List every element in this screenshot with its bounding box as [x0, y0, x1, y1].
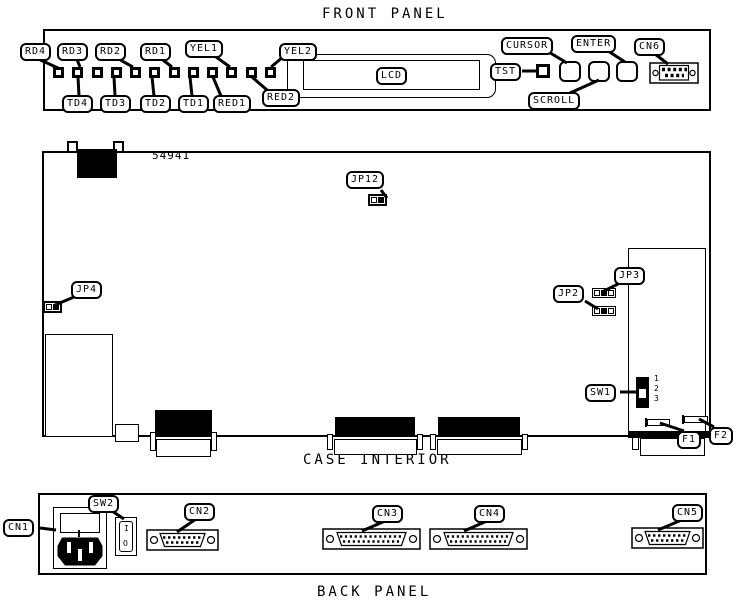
sw1-pos-3: 3	[654, 394, 659, 404]
connector3-shell	[437, 439, 522, 455]
transformer	[77, 149, 117, 178]
connector3-ear-left	[430, 434, 436, 450]
jp2-jumper	[592, 306, 616, 316]
cursor-button	[559, 61, 581, 82]
label-cn2: CN2	[184, 503, 215, 521]
sw1-pos-1: 1	[654, 374, 659, 384]
cn1-power-inlet	[57, 537, 103, 566]
connector3-ear-right	[522, 434, 528, 450]
label-td3: TD3	[100, 95, 131, 113]
connector1-shell	[156, 439, 211, 457]
front-panel-title: FRONT PANEL	[322, 6, 448, 22]
label-td4: TD4	[62, 95, 93, 113]
label-sw2: SW2	[88, 495, 119, 513]
label-scroll: SCROLL	[528, 92, 580, 110]
led-yel1	[226, 67, 237, 78]
label-td2: TD2	[140, 95, 171, 113]
sw2-off-mark: O	[123, 540, 128, 548]
led-td1	[188, 67, 199, 78]
led-rd2	[130, 67, 141, 78]
label-cn5: CN5	[672, 504, 703, 522]
led-rd3	[92, 67, 103, 78]
power-supply-block	[45, 334, 113, 437]
cn2-connector	[146, 529, 219, 551]
label-red1: RED1	[213, 95, 251, 113]
jp4-jumper	[43, 301, 62, 313]
connector3-body	[438, 417, 520, 436]
connector1-ear-right	[211, 432, 217, 451]
label-lcd: LCD	[376, 67, 407, 85]
sw2-rocker: I O	[119, 521, 133, 552]
f1-fuse	[647, 419, 670, 426]
sw1-positions: 1 2 3	[654, 374, 659, 404]
label-yel2: YEL2	[279, 43, 317, 61]
sw1-switch	[636, 377, 649, 408]
led-td2	[149, 67, 160, 78]
led-red2	[246, 67, 257, 78]
label-jp3: JP3	[614, 267, 645, 285]
connector2-shell	[334, 439, 417, 455]
label-jp4: JP4	[71, 281, 102, 299]
enter-button	[616, 61, 638, 82]
hardware-diagram: FRONT PANEL CASE INTERIOR BACK PANEL RD4…	[0, 0, 736, 609]
sw2-on-mark: I	[124, 525, 129, 533]
label-yel1: YEL1	[185, 40, 223, 58]
fuse-drawer	[60, 513, 100, 533]
board-connector-ear	[632, 437, 639, 450]
label-rd3: RD3	[57, 43, 88, 61]
sw1-actuator	[639, 389, 646, 398]
fuse-drawer-latch	[78, 530, 80, 537]
f2-fuse	[684, 416, 708, 423]
cn4-connector	[429, 528, 528, 550]
connector2-ear-right	[417, 434, 423, 450]
connector2-body	[335, 417, 415, 436]
jp12-jumper	[368, 194, 387, 206]
label-cn6: CN6	[634, 38, 665, 56]
label-cn1: CN1	[3, 519, 34, 537]
back-panel-title: BACK PANEL	[317, 584, 431, 600]
scroll-button	[588, 61, 610, 82]
led-yel2	[265, 67, 276, 78]
led-td3	[111, 67, 122, 78]
label-sw1: SW1	[585, 384, 616, 402]
label-f1: F1	[677, 431, 701, 449]
small-component	[115, 424, 139, 442]
led-rd4	[53, 67, 64, 78]
label-rd2: RD2	[95, 43, 126, 61]
label-td1: TD1	[178, 95, 209, 113]
label-cn4: CN4	[474, 505, 505, 523]
led-td4	[72, 67, 83, 78]
label-enter: ENTER	[571, 35, 616, 53]
label-jp12: JP12	[346, 171, 384, 189]
board-number: 54941	[152, 149, 190, 162]
cn3-connector	[322, 528, 421, 550]
connector1-ear-left	[150, 432, 156, 451]
label-jp2: JP2	[553, 285, 584, 303]
cn6-connector	[649, 62, 699, 84]
label-tst: TST	[490, 63, 521, 81]
label-f2: F2	[709, 427, 733, 445]
tst-led	[536, 64, 550, 78]
label-cursor: CURSOR	[501, 37, 553, 55]
label-rd4: RD4	[20, 43, 51, 61]
connector1-body	[155, 410, 212, 436]
label-cn3: CN3	[372, 505, 403, 523]
label-red2: RED2	[262, 89, 300, 107]
sw1-pos-2: 2	[654, 384, 659, 394]
label-rd1: RD1	[140, 43, 171, 61]
cn5-connector	[631, 527, 704, 549]
connector2-ear-left	[327, 434, 333, 450]
led-rd1	[169, 67, 180, 78]
jp3-jumper	[592, 288, 616, 298]
led-red1	[207, 67, 218, 78]
